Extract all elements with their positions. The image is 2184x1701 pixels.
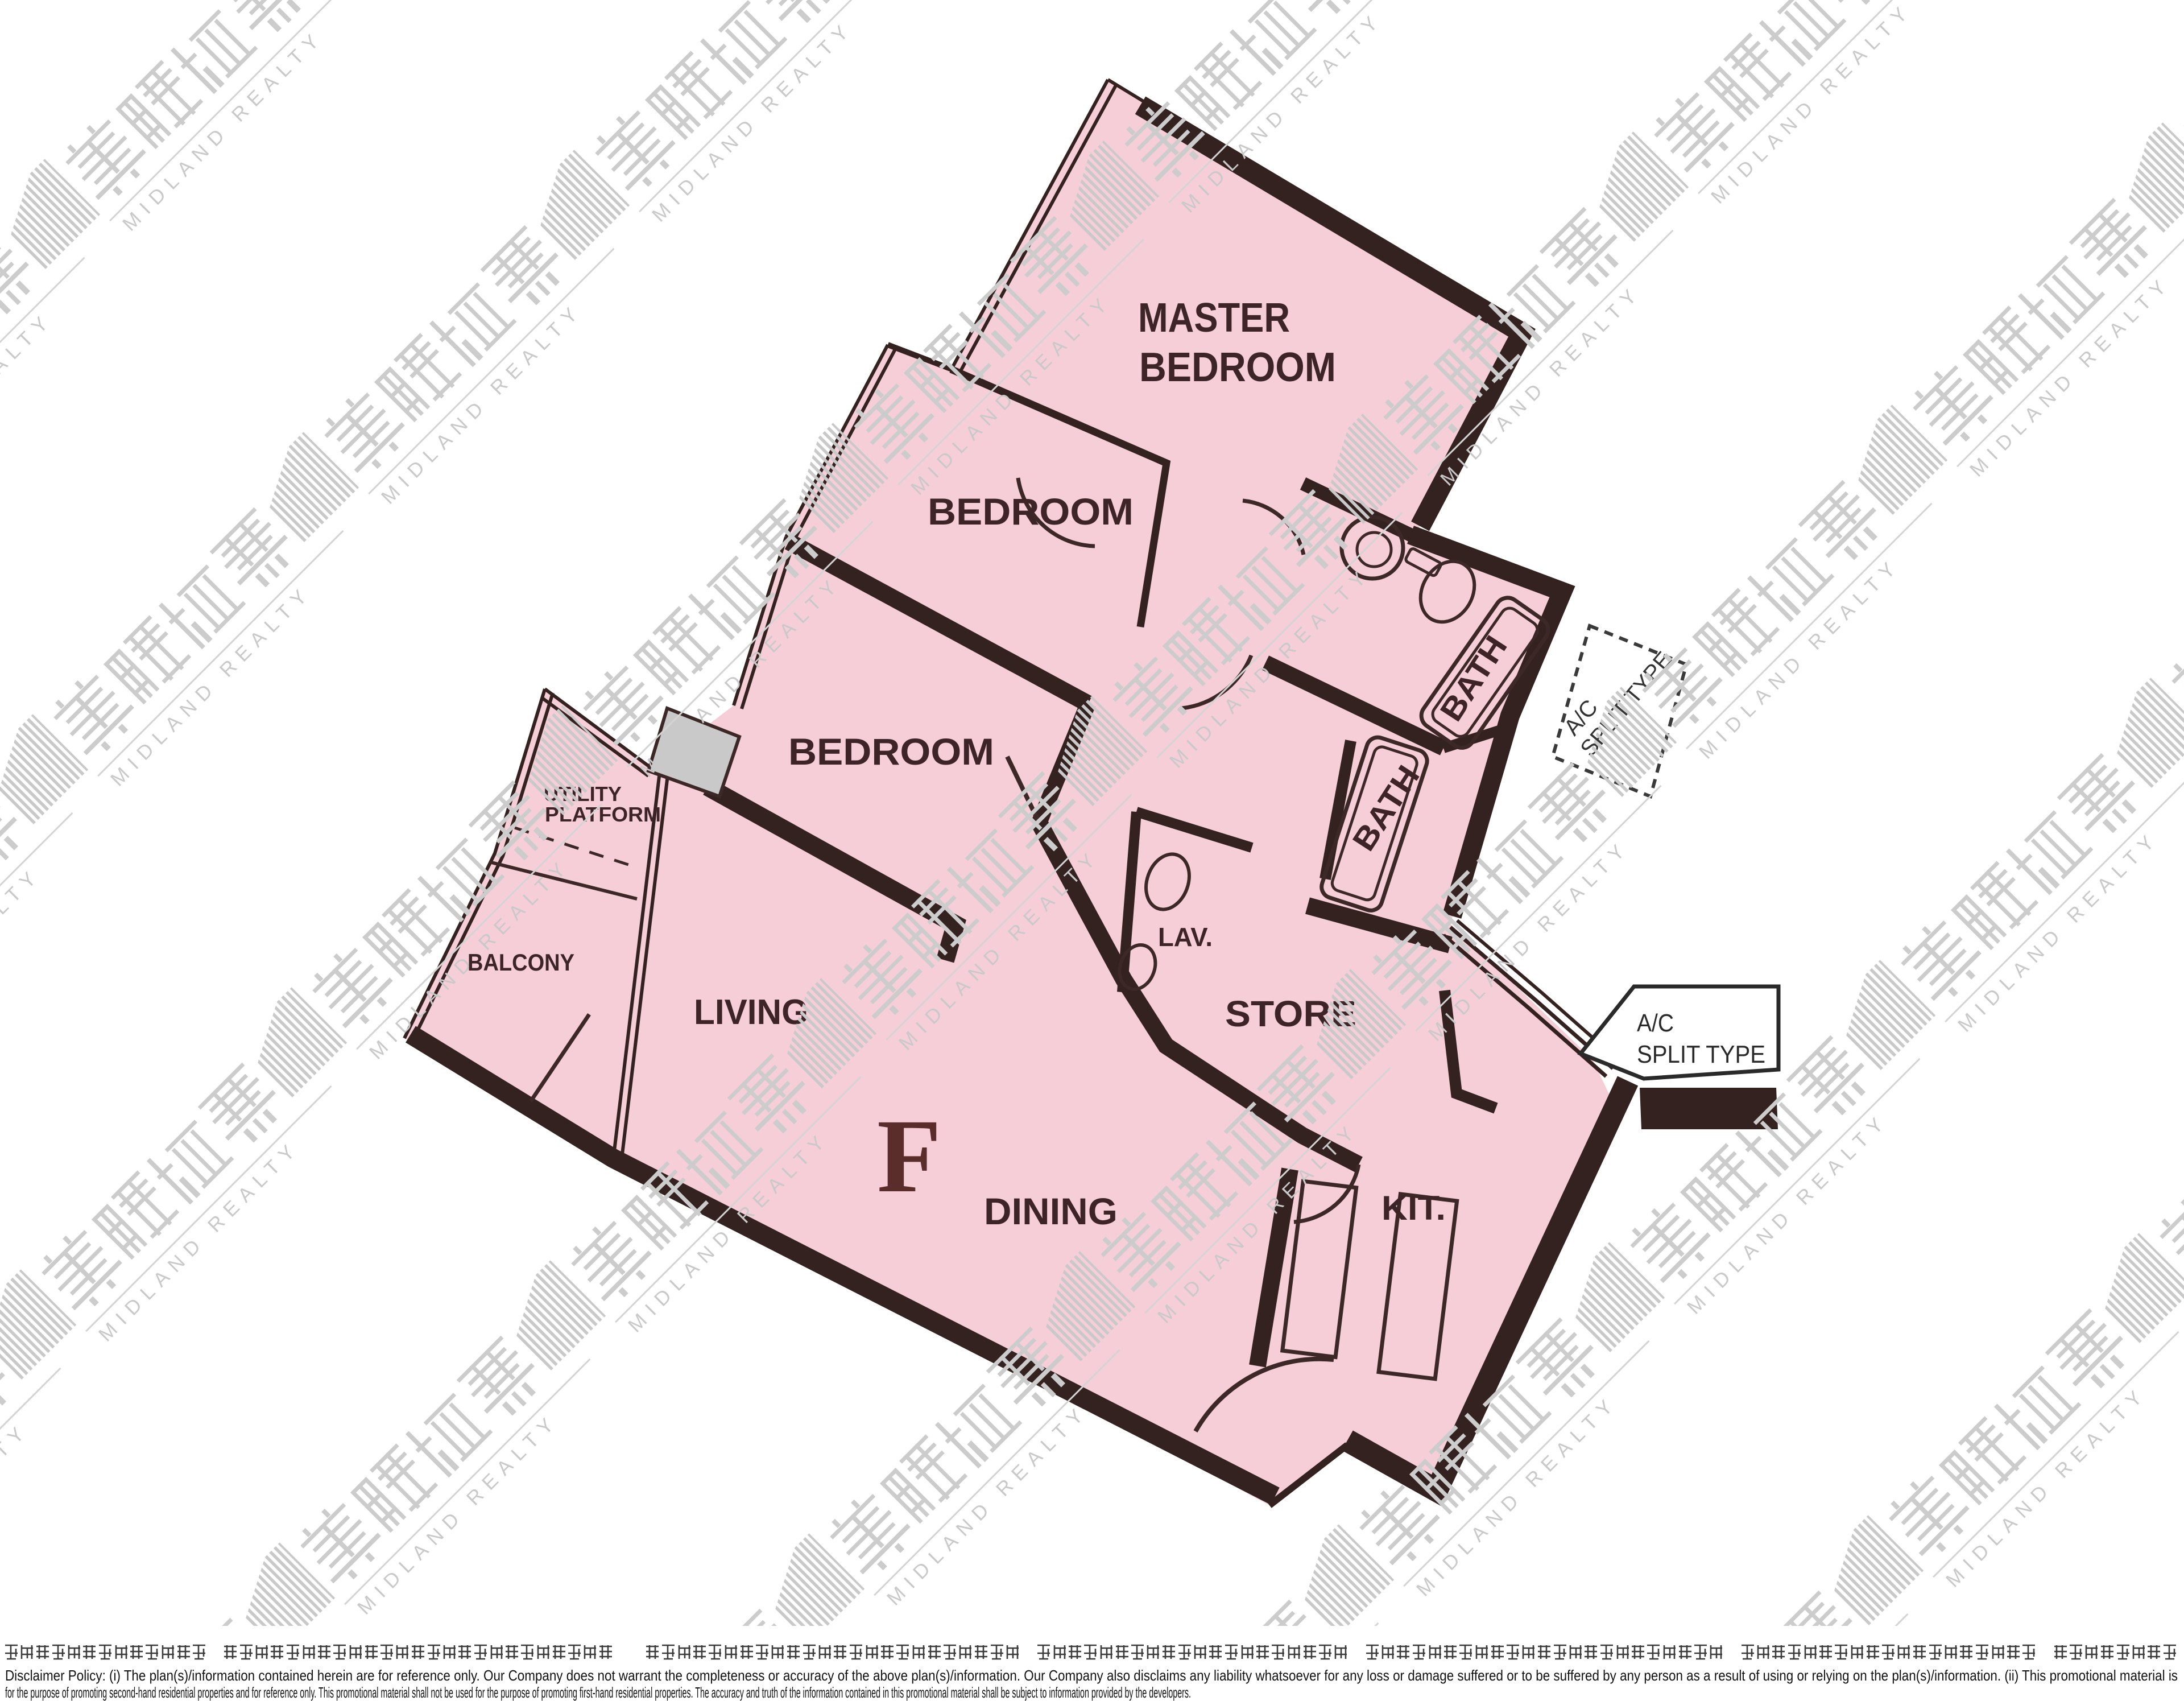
svg-text:for the purpose of promoting s: for the purpose of promoting second-hand… [5, 1684, 1191, 1701]
svg-text:F: F [877, 1098, 941, 1215]
svg-text:BEDROOM: BEDROOM [928, 490, 1134, 532]
svg-text:KIT.: KIT. [1381, 1189, 1446, 1227]
svg-text:MASTER: MASTER [1138, 295, 1290, 341]
svg-text:Disclaimer Policy: (i) The pla: Disclaimer Policy: (i) The plan(s)/infor… [5, 1667, 2178, 1684]
svg-text:DINING: DINING [984, 1190, 1118, 1232]
svg-text:A/C: A/C [1637, 1009, 1674, 1037]
svg-text:LAV.: LAV. [1158, 922, 1213, 952]
svg-text:BEDROOM: BEDROOM [1139, 345, 1336, 390]
svg-text:BEDROOM: BEDROOM [788, 730, 994, 773]
svg-text:SPLIT TYPE: SPLIT TYPE [1637, 1041, 1765, 1068]
svg-text:LIVING: LIVING [694, 993, 808, 1032]
